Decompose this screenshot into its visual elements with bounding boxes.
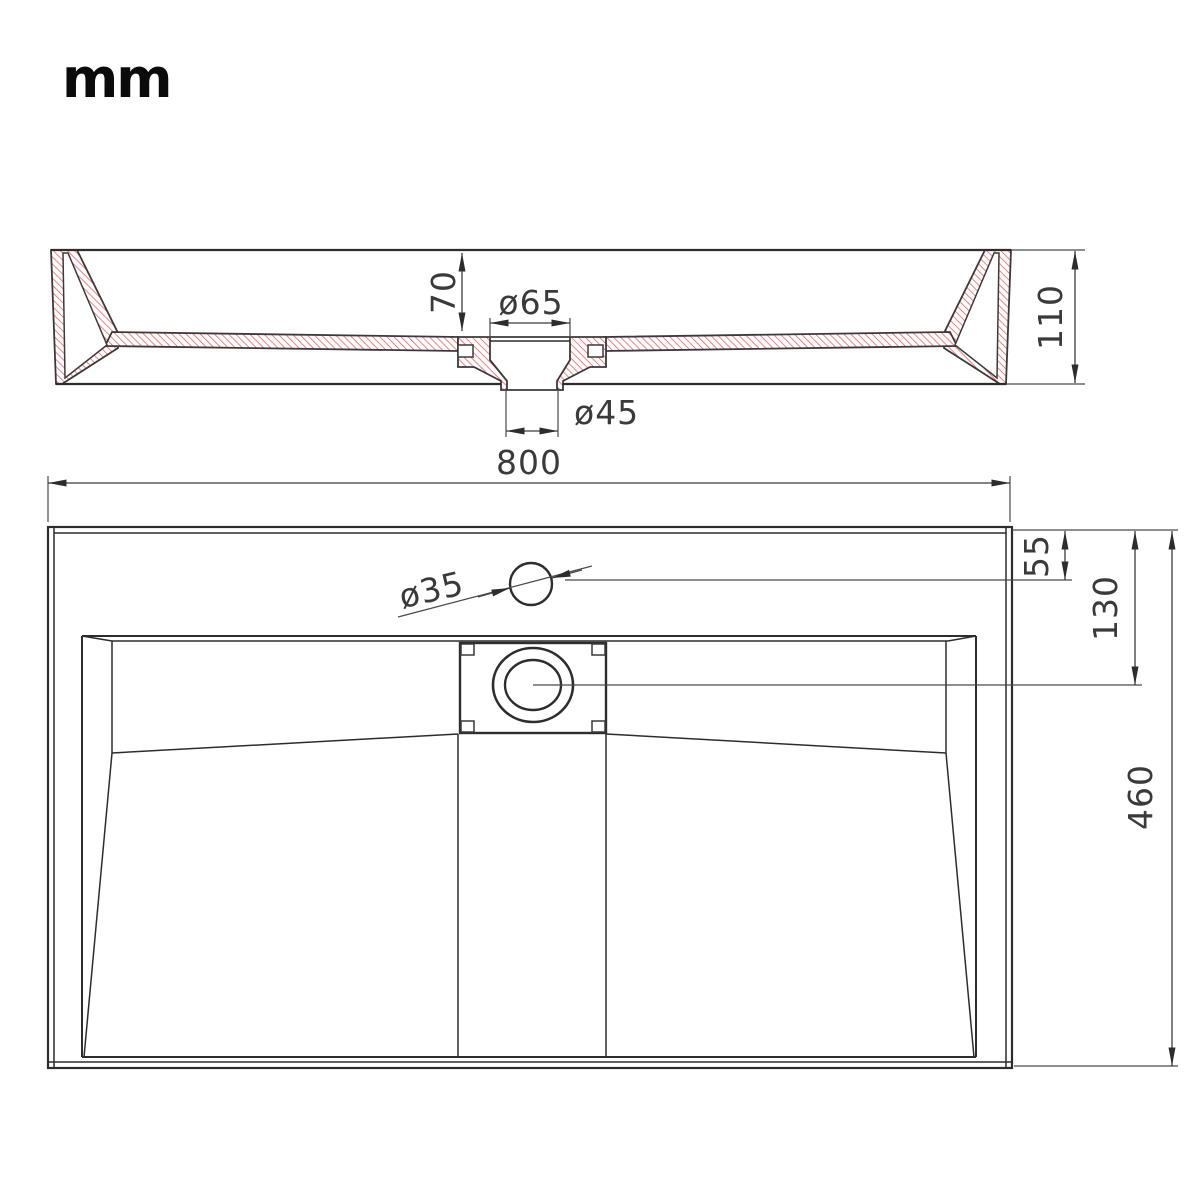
basin-floor-break-left [112,734,458,753]
section-floor-right [604,332,957,351]
dimension-faucet-offset: 55 [1017,531,1065,580]
washbasin-drawing: mm 70 ø65 [0,0,1200,1200]
basin-wall-slope-left [84,753,112,1057]
dimension-basin-depth: 70 [424,253,463,331]
dim-text-110: 110 [1031,284,1070,350]
section-drain-recess [458,337,606,390]
technical-drawing-page: mm 70 ø65 [0,0,1200,1200]
basin-floor-break-right [606,734,946,753]
unit-label: mm [62,47,171,110]
drain-plate-tab-br [592,721,605,732]
section-floor-left [105,332,458,351]
drain-plate-tab-tl [461,644,474,655]
dimension-drain-offset: 130 [1086,531,1135,685]
dim-text-460: 460 [1121,764,1160,830]
drain-plate [460,643,606,733]
section-recess-step-left [458,345,473,357]
faucet-hole [510,563,552,605]
dim-text-35: ø35 [395,563,467,616]
dimension-overall-depth: 460 [1121,531,1172,1066]
faucet-leader-arrow-left [478,588,510,597]
dim-text-65: ø65 [498,283,563,322]
dim-text-130: 130 [1086,575,1125,641]
basin-wall-slope-right [946,753,974,1057]
plan-outer-rect [48,527,1012,1068]
drain-plate-tab-tr [592,644,605,655]
plan-view: ø35 800 55 130 460 [48,443,1178,1068]
dimension-overall-height: 110 [1006,250,1085,384]
section-recess-step-right [588,345,603,357]
dimension-overall-width: 800 [48,443,1010,522]
faucet-leader-arrow-right [552,570,582,578]
dim-text-55: 55 [1017,534,1056,578]
dimension-drain-recess-diameter: ø65 [490,283,570,340]
dim-text-800: 800 [496,443,562,482]
dim-text-70: 70 [424,270,463,314]
drain-plate-tab-bl [461,721,474,732]
section-view: 70 ø65 ø45 110 [51,250,1085,437]
dimension-drain-outlet-diameter: ø45 [506,388,639,437]
dim-text-45: ø45 [574,393,639,432]
